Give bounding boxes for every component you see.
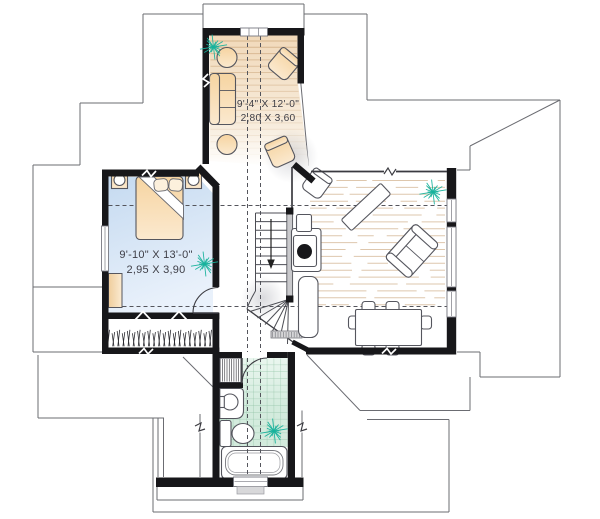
newel-post — [286, 296, 293, 303]
linen-shelves — [220, 358, 241, 383]
wood-stove — [292, 215, 322, 338]
wall — [267, 352, 288, 358]
line-break-icon — [195, 423, 205, 431]
wall — [306, 348, 456, 355]
round-side-table — [217, 48, 237, 68]
down-arrow-icon — [267, 219, 275, 269]
window — [241, 28, 268, 36]
line-break-icon — [297, 423, 307, 431]
wall — [288, 352, 295, 478]
sitting-dimension-imperial: 9'-4" X 12'-0" — [237, 99, 299, 110]
faucet — [220, 397, 225, 408]
bedroom-dimension-metric: 2,95 X 3,90 — [126, 264, 185, 276]
sitting-dimension-metric: 2,80 X 3,60 — [241, 113, 296, 124]
stove-flue — [297, 244, 312, 259]
toilet-bowl — [232, 424, 254, 444]
dormer-front-wall — [156, 478, 304, 488]
toilet-tank — [220, 421, 231, 447]
wall — [298, 28, 305, 84]
round-side-table — [217, 135, 237, 155]
wall-diagonal — [293, 342, 309, 350]
dining-set — [349, 302, 432, 356]
bed — [136, 177, 184, 240]
wall — [213, 186, 220, 287]
dresser — [109, 274, 123, 308]
console-table — [341, 183, 391, 231]
sofa — [210, 74, 236, 125]
window-sill — [237, 487, 264, 495]
pillow — [153, 178, 168, 191]
dining-chair — [421, 316, 432, 329]
bathtub — [222, 447, 288, 480]
wall — [220, 352, 243, 358]
stove-flue-box — [297, 215, 312, 232]
newel-post — [286, 208, 293, 215]
wall-break-icon — [384, 168, 396, 175]
dining-table — [356, 310, 422, 346]
wall — [102, 348, 219, 355]
floor-plan-drawing: 9'-4" X 12'-0" 2,80 X 3,60 9'-10" X 13'-… — [0, 0, 600, 519]
hearth-bench — [299, 277, 319, 338]
closet-floor — [109, 319, 214, 348]
wall — [213, 352, 220, 478]
wall — [220, 383, 244, 389]
floor-plan-page: 9'-4" X 12'-0" 2,80 X 3,60 9'-10" X 13'-… — [0, 0, 600, 519]
bedroom-dimension-imperial: 9'-10" X 13'-0" — [119, 249, 192, 261]
pillow — [169, 178, 183, 191]
